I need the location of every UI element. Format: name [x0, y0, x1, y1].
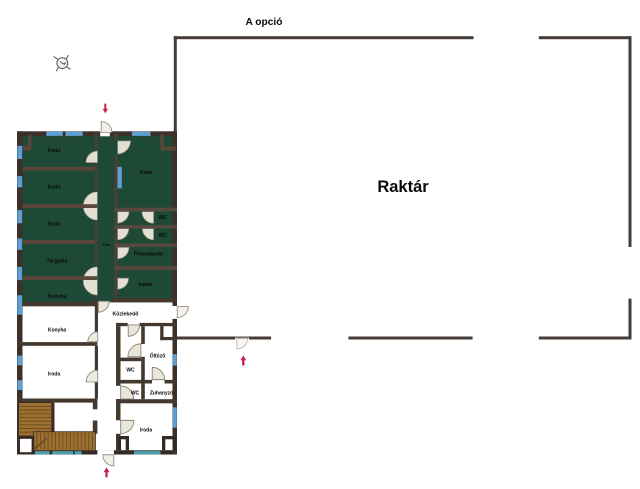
- svg-text:Zuhanyzó: Zuhanyzó: [150, 391, 173, 397]
- svg-text:Fénymásoló: Fénymásoló: [134, 252, 163, 258]
- svg-text:WC: WC: [126, 368, 135, 374]
- svg-text:Konyha: Konyha: [48, 327, 67, 333]
- svg-text:Öltöző: Öltöző: [150, 353, 166, 360]
- svg-text:Közl.: Közl.: [103, 243, 112, 247]
- svg-text:Iroda: Iroda: [48, 221, 60, 227]
- svg-text:WC: WC: [158, 215, 167, 221]
- svg-text:A opció: A opció: [246, 17, 283, 28]
- svg-text:WC: WC: [158, 233, 167, 239]
- svg-text:Raktár: Raktár: [377, 178, 429, 196]
- svg-text:Iroda: Iroda: [48, 148, 60, 154]
- svg-text:Iroda: Iroda: [48, 185, 60, 191]
- svg-text:Közlekedő: Közlekedő: [113, 311, 139, 317]
- svg-text:Iroda: Iroda: [140, 170, 152, 176]
- svg-text:Tárgyaló: Tárgyaló: [47, 258, 68, 264]
- svg-text:Iroda: Iroda: [140, 428, 152, 434]
- svg-text:WC: WC: [131, 391, 140, 397]
- svg-text:Iroda: Iroda: [48, 372, 60, 378]
- svg-text:Konyha: Konyha: [48, 294, 67, 300]
- svg-text:Irattár: Irattár: [139, 282, 153, 288]
